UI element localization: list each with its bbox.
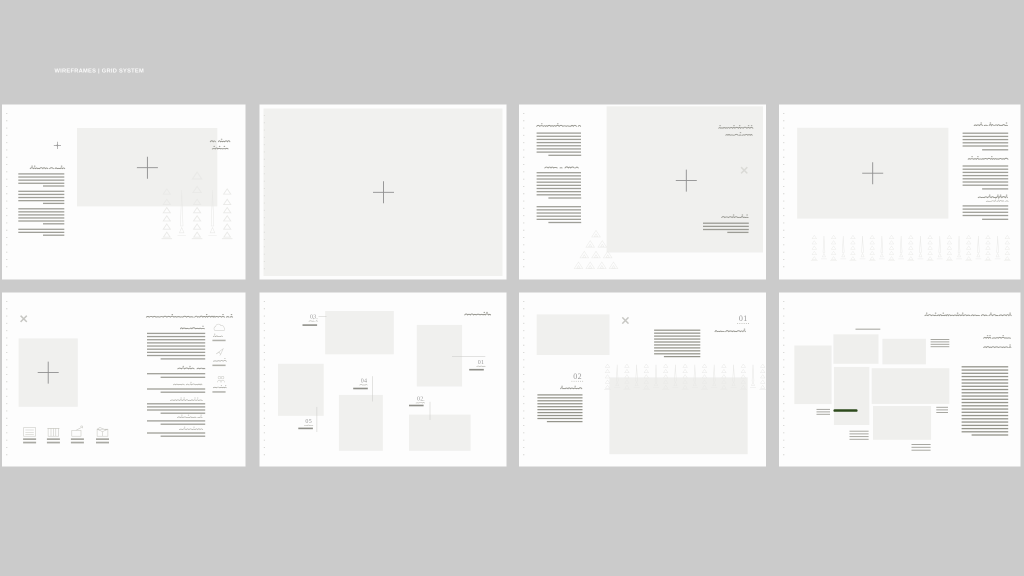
svg-text:01: 01 <box>478 360 485 366</box>
svg-text:02: 02 <box>417 396 424 402</box>
svg-text:01: 01 <box>739 314 748 323</box>
svg-text:WIREFRAMES | GRID SYSTEM: WIREFRAMES | GRID SYSTEM <box>55 68 145 74</box>
svg-text:04: 04 <box>361 378 368 384</box>
svg-text:03: 03 <box>310 315 317 321</box>
svg-text:05: 05 <box>305 419 312 425</box>
svg-text:02: 02 <box>573 372 582 381</box>
